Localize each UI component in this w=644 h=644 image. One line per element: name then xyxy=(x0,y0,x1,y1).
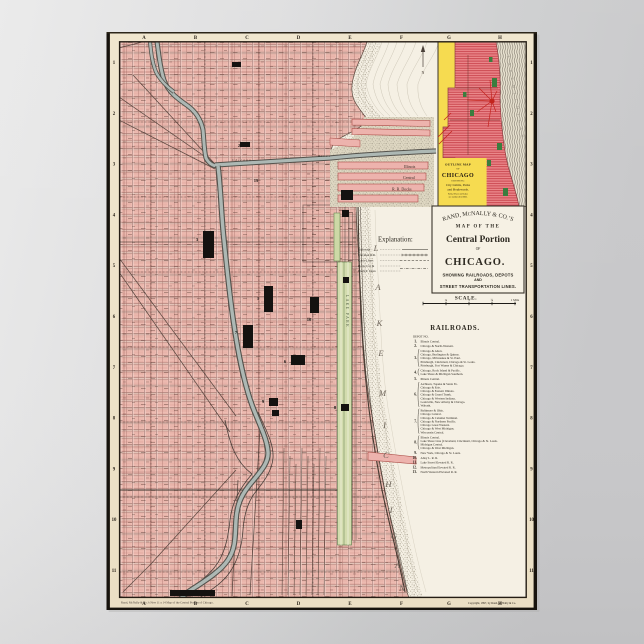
svg-text:C: C xyxy=(245,36,249,41)
svg-text:5.: 5. xyxy=(414,377,417,381)
svg-text:OUTLINE MAP: OUTLINE MAP xyxy=(445,163,471,167)
svg-text:F: F xyxy=(400,602,403,607)
svg-text:7.: 7. xyxy=(414,419,417,423)
svg-text:10: 10 xyxy=(112,518,117,523)
svg-text:Parks, Rivers and Lakes: Parks, Rivers and Lakes xyxy=(448,194,468,196)
svg-text:G: G xyxy=(447,602,451,607)
svg-text:Chicago: Chicago xyxy=(232,158,252,162)
svg-text:D: D xyxy=(297,36,301,41)
svg-text:CHICAGO.: CHICAGO. xyxy=(445,257,505,268)
svg-text:G: G xyxy=(447,36,451,41)
svg-text:STREET TRANSPORTATION LINES.: STREET TRANSPORTATION LINES. xyxy=(440,284,516,289)
svg-text:C: C xyxy=(383,450,389,460)
svg-text:9.: 9. xyxy=(414,451,417,455)
svg-text:11: 11 xyxy=(112,569,117,574)
svg-text:C: C xyxy=(245,602,249,607)
svg-text:3.: 3. xyxy=(414,356,417,360)
svg-text:L: L xyxy=(373,243,379,253)
svg-text:Elevated R.R.: Elevated R.R. xyxy=(358,253,376,257)
svg-text:DEPOT NO.: DEPOT NO. xyxy=(413,335,429,339)
svg-text:R. R. Docks: R. R. Docks xyxy=(392,187,412,192)
svg-text:11: 11 xyxy=(529,569,534,574)
svg-text:A: A xyxy=(374,282,381,292)
svg-text:6.: 6. xyxy=(414,393,417,397)
svg-text:Railroads: Railroads xyxy=(358,248,371,252)
svg-text:Central Portion: Central Portion xyxy=(446,235,511,245)
svg-text:F: F xyxy=(400,36,403,41)
svg-text:Lake Shore & Michigan Southern: Lake Shore & Michigan Southern. xyxy=(421,372,464,376)
svg-text:Illinois: Illinois xyxy=(404,164,416,169)
svg-text:1.: 1. xyxy=(414,340,417,344)
svg-text:Horse Car &: Horse Car & xyxy=(358,264,375,268)
svg-text:SHOWING RAILROADS, DEPOTS: SHOWING RAILROADS, DEPOTS xyxy=(442,273,513,278)
svg-text:SCALE.: SCALE. xyxy=(455,296,477,302)
svg-text:A: A xyxy=(394,560,401,570)
svg-text:H: H xyxy=(498,36,502,41)
svg-text:D: D xyxy=(297,602,301,607)
svg-text:and Boulevards.: and Boulevards. xyxy=(447,188,469,192)
svg-text:8.: 8. xyxy=(414,441,417,445)
svg-text:H: H xyxy=(384,479,392,489)
svg-text:Cable Lines: Cable Lines xyxy=(358,259,374,263)
svg-text:River: River xyxy=(317,154,331,158)
svg-text:CHICAGO: CHICAGO xyxy=(442,173,474,179)
svg-text:Wabash.: Wabash. xyxy=(421,404,432,408)
svg-text:Electric Lines: Electric Lines xyxy=(358,269,377,273)
svg-text:MAP OF THE: MAP OF THE xyxy=(456,225,501,230)
svg-text:A: A xyxy=(142,36,146,41)
svg-text:Chicago & North-Western.: Chicago & North-Western. xyxy=(421,344,455,348)
svg-text:E: E xyxy=(377,348,384,358)
svg-text:10: 10 xyxy=(529,518,534,523)
svg-text:Central: Central xyxy=(403,175,416,180)
svg-text:Chicago & West Michigan.: Chicago & West Michigan. xyxy=(421,446,455,450)
svg-text:Illinois Central.: Illinois Central. xyxy=(421,377,441,381)
svg-text:1 Mile: 1 Mile xyxy=(511,298,520,302)
svg-text:Explanation:: Explanation: xyxy=(378,237,413,244)
svg-text:N: N xyxy=(422,70,425,75)
svg-text:are numbered in RED.: are numbered in RED. xyxy=(449,197,468,199)
svg-text:Lake Street Elevated R. R.: Lake Street Elevated R. R. xyxy=(421,461,454,465)
svg-text:Alley L. R. R.: Alley L. R. R. xyxy=(421,456,439,460)
svg-text:G: G xyxy=(391,531,397,541)
svg-text:E: E xyxy=(348,602,351,607)
svg-text:LAKE PARK: LAKE PARK xyxy=(345,295,349,328)
svg-text:AND: AND xyxy=(474,278,482,282)
svg-text:12.: 12. xyxy=(413,465,418,469)
svg-text:10: 10 xyxy=(307,317,312,322)
svg-text:M: M xyxy=(378,388,387,398)
svg-text:RAILROADS.: RAILROADS. xyxy=(430,325,480,332)
svg-text:Metropolitan Elevated R. R.: Metropolitan Elevated R. R. xyxy=(421,465,456,469)
svg-text:Illinois Central.: Illinois Central. xyxy=(421,340,441,344)
svg-text:North Western Elevated R. R.: North Western Elevated R. R. xyxy=(421,470,458,474)
svg-text:11.: 11. xyxy=(413,461,417,465)
svg-text:13.: 13. xyxy=(413,470,418,474)
svg-text:E: E xyxy=(348,36,351,41)
svg-text:2.: 2. xyxy=(414,344,417,348)
svg-text:10.: 10. xyxy=(413,456,418,460)
svg-text:Wisconsin Central.: Wisconsin Central. xyxy=(421,430,445,434)
svg-text:15: 15 xyxy=(254,178,259,183)
svg-text:OF: OF xyxy=(476,247,481,251)
svg-text:4.: 4. xyxy=(414,370,417,374)
svg-text:Copyright, 1897, by Rand, McNa: Copyright, 1897, by Rand, McNally & Co. xyxy=(468,602,516,605)
